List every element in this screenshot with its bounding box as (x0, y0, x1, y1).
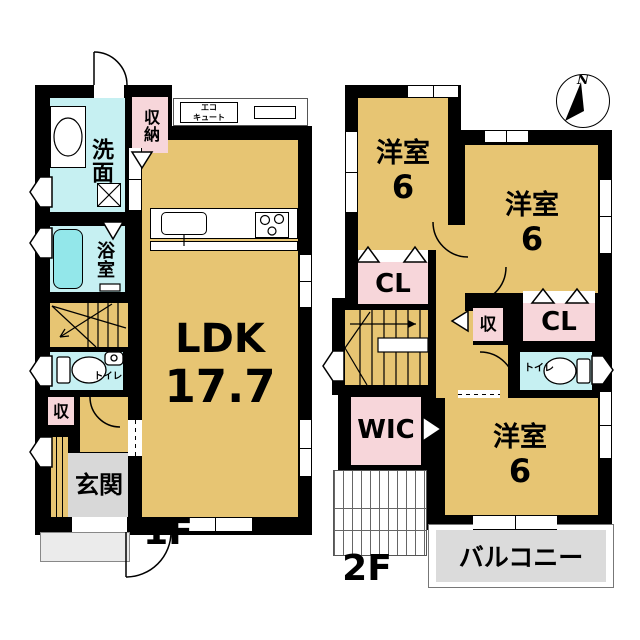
label-floor1: 1F (138, 512, 198, 554)
f1-stairs (50, 303, 128, 347)
eco-cute-tank-box (254, 106, 296, 119)
closet-left-folding-door-zone (358, 250, 428, 262)
label-bedroom-nw-area: 6 (362, 168, 444, 206)
label-closet-right: CL (527, 306, 591, 338)
label-entrance: 玄関 (70, 470, 128, 500)
label-ldk-name: LDK (150, 316, 290, 362)
eco-cute-label-line2: キュート (193, 113, 225, 122)
label-bedroom-ne-name: 洋室 (490, 188, 574, 222)
label-storage-small-2f: 収 (476, 312, 500, 338)
label-bedroom-s-area: 6 (478, 452, 562, 490)
f1-front-door-gap (72, 517, 127, 532)
bathtub (53, 229, 83, 289)
label-ldk-area: 17.7 (150, 360, 290, 412)
f2-window-south (473, 515, 557, 530)
eco-cute-unit: エコ キュート (180, 102, 238, 123)
f2-window-west (345, 132, 358, 212)
f1-hall-ldk-sliding-door (128, 420, 142, 456)
f2-window-east-2 (599, 392, 612, 458)
label-toilet-2f: トイレ (521, 361, 557, 377)
f1-top-door-gap (94, 85, 124, 98)
kitchen-counter-ledge (150, 241, 298, 251)
label-balcony: バルコニー (440, 540, 602, 574)
f2-stairs (345, 310, 428, 385)
floor-plan-canvas: エコ キュート (0, 0, 640, 640)
label-bedroom-nw-name: 洋室 (362, 136, 444, 170)
kitchen-sink (161, 212, 207, 235)
f2-window-north-2 (485, 130, 528, 143)
f1-window-east-2 (299, 420, 312, 476)
f2-bedroom-s-sliding-door (458, 390, 500, 398)
entrance-step-strip (50, 437, 68, 517)
label-bath: 浴室 (91, 230, 117, 290)
kitchen-stove (255, 212, 289, 238)
eco-cute-label-line1: エコ (201, 103, 217, 112)
closet-right-folding-door-zone (523, 291, 595, 303)
f2-window-east-1 (599, 180, 612, 253)
eco-cute-strip: エコ キュート (173, 98, 308, 126)
label-wic: WIC (352, 414, 420, 446)
f2-hall-notch (436, 225, 465, 311)
entrance-porch (40, 532, 130, 562)
f1-washroom-sliding-door (128, 148, 142, 210)
f2-window-north-1 (408, 85, 458, 98)
label-storage-small-1f: 収 (50, 402, 72, 422)
label-bedroom-s-name: 洋室 (478, 420, 562, 454)
label-compass-north: N (568, 72, 598, 88)
label-washroom: 洗面 (86, 124, 114, 198)
f1-top-door-arc (94, 52, 127, 85)
label-toilet-1f: トイレ (90, 370, 126, 384)
label-storage-closet: 収納 (138, 101, 162, 151)
lower-roof-hatch (333, 470, 427, 556)
label-floor2: 2F (336, 548, 398, 590)
f1-window-east-1 (299, 255, 312, 307)
washroom-vanity (50, 106, 86, 168)
f1-hall (80, 397, 128, 452)
label-bedroom-ne-area: 6 (490, 220, 574, 258)
label-closet-left: CL (362, 268, 424, 300)
